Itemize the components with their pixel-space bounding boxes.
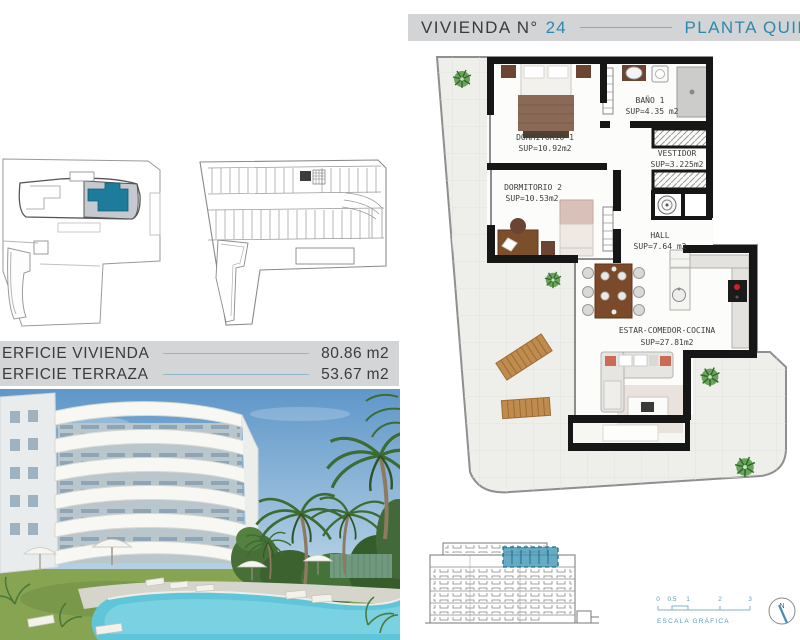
entrance-mat bbox=[603, 425, 658, 441]
graphic-scale: 0 0.5 1 2 3 ESCALA GRÁFICA bbox=[648, 590, 760, 632]
wardrobe-hatch bbox=[653, 171, 710, 189]
room-name: VESTIDOR bbox=[658, 149, 697, 158]
surface-panel: ERFICIE VIVIENDA 80.86 m2 ERFICIE TERRAZ… bbox=[0, 341, 399, 386]
surface-value: 53.67 m2 bbox=[321, 366, 389, 384]
elevation-unit-highlight bbox=[503, 547, 558, 567]
room-name: HALL bbox=[650, 231, 669, 240]
scale-tick: 3 bbox=[748, 596, 752, 603]
room-name: DORMITORIO 1 bbox=[516, 133, 574, 142]
room-sup: SUP=10.53m2 bbox=[506, 194, 559, 203]
room-sup: SUP=27.81m2 bbox=[641, 338, 694, 347]
scale-tick: 1 bbox=[686, 596, 690, 603]
scale-tick: 0 bbox=[656, 596, 660, 603]
room-sup: SUP=4.35 m2 bbox=[626, 107, 679, 116]
elevation-hut bbox=[577, 611, 599, 623]
plant-label: PLANTA QUIN bbox=[685, 18, 800, 38]
title-divider-line bbox=[580, 27, 672, 28]
elevation-drawing bbox=[425, 538, 600, 634]
pool-fence bbox=[330, 554, 392, 578]
coffee-table bbox=[628, 397, 668, 418]
surface-label: ERFICIE VIVIENDA bbox=[2, 345, 149, 363]
dining-table bbox=[583, 264, 645, 318]
cooktop bbox=[728, 280, 747, 302]
scale-tick: 0.5 bbox=[667, 596, 676, 603]
wardrobe-hatch bbox=[653, 129, 710, 147]
washing-machine bbox=[653, 192, 710, 218]
title-vivienda-label: VIVIENDA N° bbox=[421, 18, 539, 38]
room-name: DORMITORIO 2 bbox=[504, 183, 562, 192]
garage-plan-drawing bbox=[196, 148, 398, 334]
scale-ticks: 0 0.5 1 2 3 bbox=[656, 596, 752, 603]
site-plan-drawing bbox=[0, 153, 172, 331]
building-render-photo bbox=[0, 389, 400, 640]
surface-label: ERFICIE TERRAZA bbox=[2, 366, 149, 384]
terrace-lounger bbox=[501, 397, 550, 418]
dorm2-radiator bbox=[603, 207, 613, 251]
unit-number: 24 bbox=[546, 18, 567, 38]
room-sup: SUP=10.92m2 bbox=[519, 144, 572, 153]
leader-line bbox=[163, 353, 309, 354]
surface-row-vivienda: ERFICIE VIVIENDA 80.86 m2 bbox=[2, 343, 389, 364]
plan-sheet: VIVIENDA N° 24 PLANTA QUIN bbox=[0, 0, 800, 640]
room-name: ESTAR-COMEDOR-COCINA bbox=[619, 326, 716, 335]
leader-line bbox=[163, 374, 310, 375]
surface-value: 80.86 m2 bbox=[321, 345, 389, 363]
room-name: BAÑO 1 bbox=[636, 95, 665, 105]
title-bar: VIVIENDA N° 24 PLANTA QUIN bbox=[408, 14, 800, 41]
scale-label: ESCALA GRÁFICA bbox=[657, 616, 730, 625]
roof-skylight bbox=[296, 248, 354, 264]
floor-plan-drawing: DORMITORIO 1 SUP=10.92m2 BAÑO 1 SUP=4.35… bbox=[425, 45, 793, 515]
room-sup: SUP=3.225m2 bbox=[651, 160, 704, 169]
north-arrow: N bbox=[765, 595, 799, 629]
room-sup: SUP=7.64 m2 bbox=[634, 242, 687, 251]
surface-row-terraza: ERFICIE TERRAZA 53.67 m2 bbox=[2, 364, 389, 385]
scale-tick: 2 bbox=[718, 596, 722, 603]
scale-bar-line bbox=[658, 606, 750, 610]
